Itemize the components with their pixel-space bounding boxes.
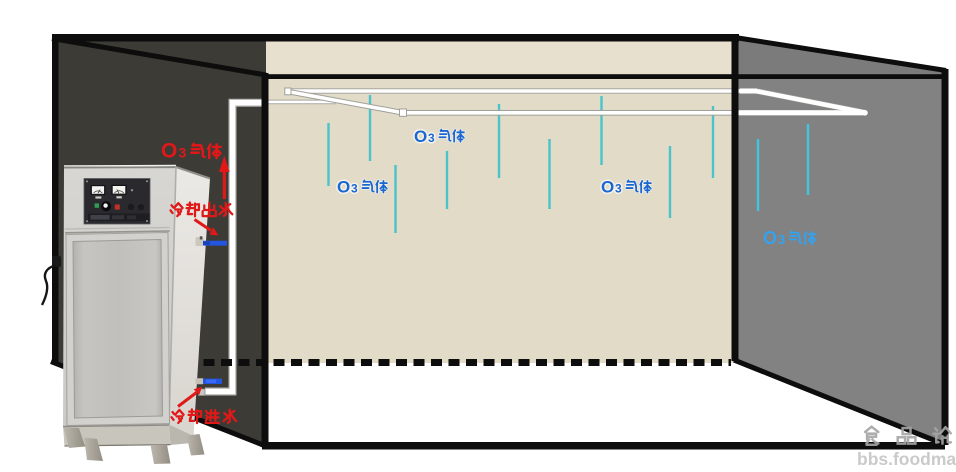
svg-text:bbs.foodma: bbs.foodma xyxy=(857,449,956,469)
svg-text:O: O xyxy=(601,178,614,197)
svg-text:3: 3 xyxy=(351,182,358,196)
svg-text:3: 3 xyxy=(179,145,187,161)
svg-text:3: 3 xyxy=(428,131,435,145)
svg-text:O: O xyxy=(337,178,350,197)
svg-text:3: 3 xyxy=(778,232,785,247)
svg-text:O: O xyxy=(161,140,177,163)
svg-text:O: O xyxy=(763,228,777,248)
svg-text:O: O xyxy=(414,127,427,146)
svg-text:3: 3 xyxy=(615,182,622,196)
